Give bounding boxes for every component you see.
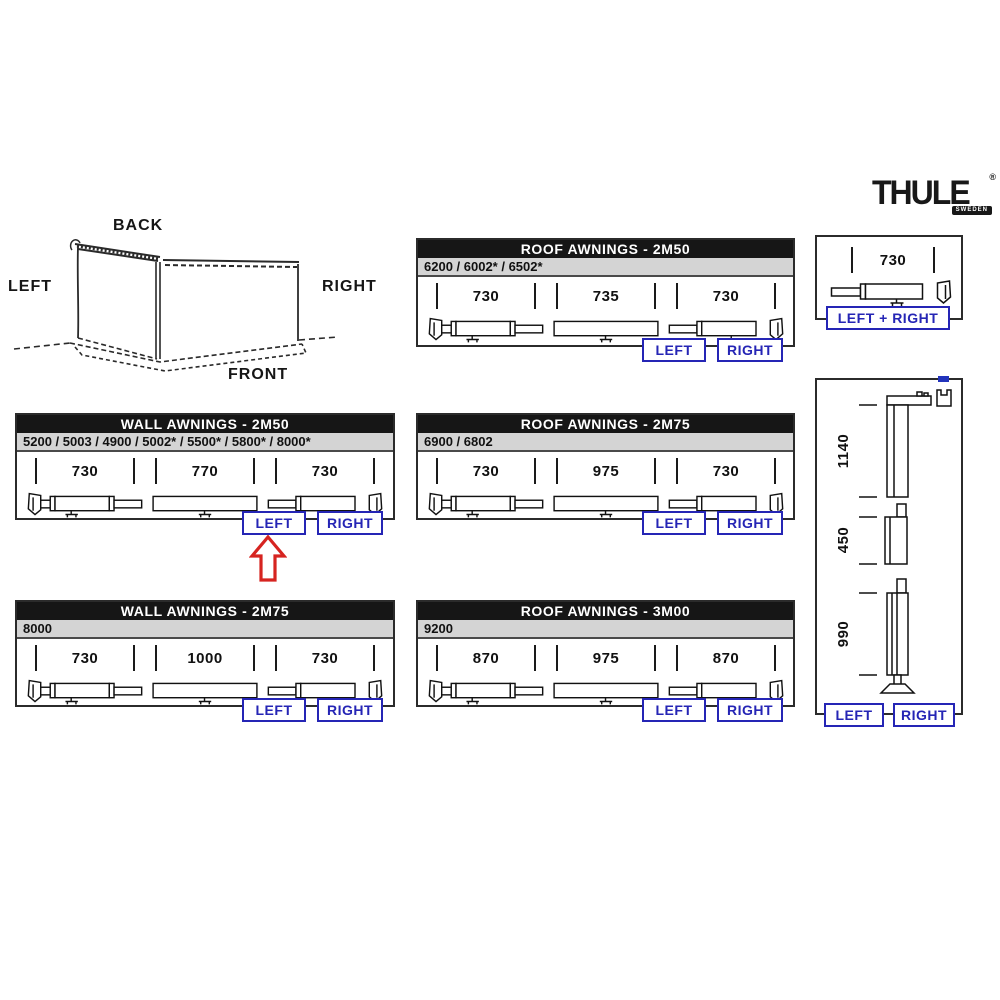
leg-dimension-990: 990 — [835, 610, 851, 658]
dimension-value: 1000 — [187, 650, 222, 667]
dimension-value: 770 — [192, 463, 219, 480]
roof-2m50-left-button[interactable]: LEFT — [642, 338, 706, 362]
registered-trademark-icon: ® — [989, 172, 996, 182]
dim-tick — [35, 645, 37, 671]
dimension-value: 730 — [72, 650, 99, 667]
wall-2m50-right-button[interactable]: RIGHT — [317, 511, 383, 535]
dimension-value: 975 — [593, 650, 620, 667]
roof-2m50-right-button[interactable]: RIGHT — [717, 338, 783, 362]
vehicle-box-drawing — [0, 212, 390, 402]
thule-logo-tagline: SWEDEN — [952, 206, 992, 215]
roof-3m00-right-button[interactable]: RIGHT — [717, 698, 783, 722]
legs-left-button[interactable]: LEFT — [824, 703, 884, 727]
panel-models: 8000 — [17, 620, 393, 639]
left-profile-drawing — [426, 672, 546, 712]
dim-tick — [654, 645, 656, 671]
dimension-value: 735 — [593, 288, 620, 305]
left-label: LEFT — [8, 278, 52, 296]
dim-tick — [676, 645, 678, 671]
dim-tick — [556, 283, 558, 309]
dimension-value: 730 — [713, 463, 740, 480]
panel-support-legs: 1140 450 990 LEFT RIGHT — [815, 378, 963, 715]
dim-tick — [133, 458, 135, 484]
roof-2m75-left-button[interactable]: LEFT — [642, 511, 706, 535]
panel-title: WALL AWNINGS - 2M50 — [17, 415, 393, 433]
dim-tick — [676, 458, 678, 484]
dimension-value: 870 — [713, 650, 740, 667]
dim-tick — [155, 645, 157, 671]
dim-tick — [534, 458, 536, 484]
profile-left-group: 730 — [25, 458, 145, 525]
dimension-value: 975 — [593, 463, 620, 480]
wall-2m75-right-button[interactable]: RIGHT — [317, 698, 383, 722]
panel-models: 5200 / 5003 / 4900 / 5002* / 5500* / 580… — [17, 433, 393, 452]
dim-tick — [436, 283, 438, 309]
dimension-value: 730 — [713, 288, 740, 305]
dim-tick — [275, 645, 277, 671]
dim-tick — [373, 458, 375, 484]
dim-tick — [851, 247, 853, 273]
profile-left-group: 730 — [426, 458, 546, 525]
panel-wall-awnings-2m50: WALL AWNINGS - 2M50 5200 / 5003 / 4900 /… — [15, 413, 395, 520]
panel-wall-awnings-2m75: WALL AWNINGS - 2M75 8000 730 1000 730 LE… — [15, 600, 395, 707]
panel-left-right-single: 730 LEFT + RIGHT — [815, 235, 963, 320]
page: BACK LEFT RIGHT FRONT THULE ® SWEDEN ROO… — [0, 0, 1000, 1000]
panel-roof-awnings-2m75: ROOF AWNINGS - 2M75 6900 / 6802 730 975 … — [416, 413, 795, 520]
dimension-value: 870 — [473, 650, 500, 667]
dimension-value: 730 — [473, 463, 500, 480]
wall-2m75-left-button[interactable]: LEFT — [242, 698, 306, 722]
right-label: RIGHT — [322, 278, 377, 296]
panel-models: 9200 — [418, 620, 793, 639]
panel-title: ROOF AWNINGS - 3M00 — [418, 602, 793, 620]
dim-tick — [774, 458, 776, 484]
panel-title: WALL AWNINGS - 2M75 — [17, 602, 393, 620]
wall-2m50-left-button[interactable]: LEFT — [242, 511, 306, 535]
dimension-value: 730 — [312, 650, 339, 667]
dim-tick — [253, 458, 255, 484]
dim-tick — [534, 283, 536, 309]
blue-marker — [938, 376, 949, 382]
left-plus-right-button[interactable]: LEFT + RIGHT — [826, 306, 950, 330]
panel-models: 6900 / 6802 — [418, 433, 793, 452]
legs-right-button[interactable]: RIGHT — [893, 703, 955, 727]
dim-tick — [275, 458, 277, 484]
dimension-value: 730 — [473, 288, 500, 305]
profile-left-group: 730 — [25, 645, 145, 712]
dim-tick — [436, 458, 438, 484]
dimension-value: 730 — [880, 252, 907, 269]
dim-tick — [534, 645, 536, 671]
dim-tick — [556, 458, 558, 484]
dim-tick — [774, 645, 776, 671]
roof-2m75-right-button[interactable]: RIGHT — [717, 511, 783, 535]
leg-dimension-450: 450 — [835, 516, 851, 564]
dim-tick — [436, 645, 438, 671]
dim-tick — [654, 458, 656, 484]
left-profile-drawing — [25, 485, 145, 525]
profile-left-group: 870 — [426, 645, 546, 712]
dim-tick — [35, 458, 37, 484]
dim-tick — [373, 645, 375, 671]
panel-title: ROOF AWNINGS - 2M75 — [418, 415, 793, 433]
profile-left-group: 730 — [426, 283, 546, 350]
dim-tick — [155, 458, 157, 484]
back-label: BACK — [113, 217, 163, 235]
dim-tick — [933, 247, 935, 273]
panel-title: ROOF AWNINGS - 2M50 — [418, 240, 793, 258]
dim-tick — [676, 283, 678, 309]
vehicle-orientation-sketch: BACK LEFT RIGHT FRONT — [0, 212, 390, 402]
panel-roof-awnings-3m00: ROOF AWNINGS - 3M00 9200 870 975 870 LEF… — [416, 600, 795, 707]
left-profile-drawing — [426, 485, 546, 525]
front-label: FRONT — [228, 366, 288, 384]
dim-tick — [133, 645, 135, 671]
dim-tick — [774, 283, 776, 309]
left-profile-drawing — [426, 310, 546, 350]
dim-tick — [253, 645, 255, 671]
panel-roof-awnings-2m50: ROOF AWNINGS - 2M50 6200 / 6002* / 6502*… — [416, 238, 795, 347]
roof-3m00-left-button[interactable]: LEFT — [642, 698, 706, 722]
dimension-value: 730 — [72, 463, 99, 480]
dimension-value: 730 — [312, 463, 339, 480]
dim-tick — [654, 283, 656, 309]
dim-tick — [556, 645, 558, 671]
thule-logo: THULE ® SWEDEN — [872, 174, 994, 220]
leg-dimension-1140: 1140 — [835, 427, 851, 475]
panel-models: 6200 / 6002* / 6502* — [418, 258, 793, 277]
selection-arrow-icon — [249, 535, 287, 583]
left-profile-drawing — [25, 672, 145, 712]
